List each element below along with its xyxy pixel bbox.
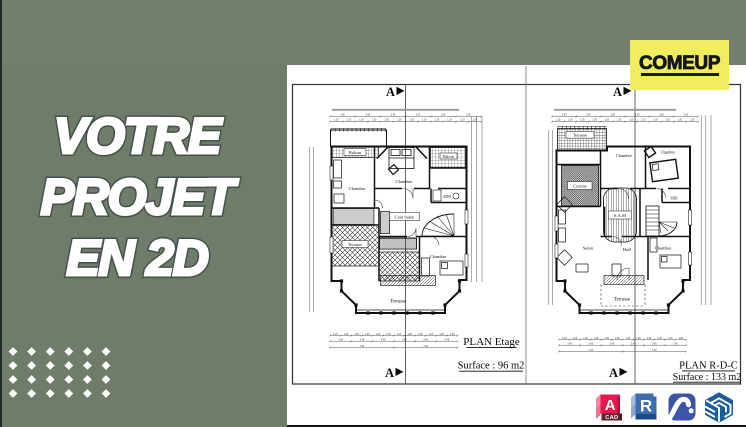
svg-text:3.45: 3.45	[567, 343, 572, 345]
svg-text:A: A	[385, 366, 394, 380]
svg-text:Balcon: Balcon	[349, 150, 362, 155]
svg-text:1.20: 1.20	[384, 120, 389, 122]
svg-text:Surface : 133 m2: Surface : 133 m2	[673, 372, 742, 383]
svg-text:1.20: 1.20	[604, 338, 609, 340]
svg-text:R: R	[640, 397, 652, 416]
svg-text:3.45: 3.45	[652, 343, 657, 345]
svg-text:1.20: 1.20	[410, 120, 415, 122]
svg-text:1.20: 1.20	[347, 120, 352, 122]
svg-text:Chambre: Chambre	[616, 153, 632, 158]
svg-text:1.20: 1.20	[556, 120, 561, 122]
svg-text:SDB: SDB	[443, 194, 451, 199]
svg-text:SDB: SDB	[671, 197, 679, 201]
svg-text:1.20: 1.20	[653, 120, 658, 122]
svg-text:7.30: 7.30	[360, 346, 365, 348]
svg-text:1.20: 1.20	[422, 120, 427, 122]
svg-text:3.45: 3.45	[338, 339, 343, 341]
svg-text:1.20: 1.20	[573, 338, 578, 340]
svg-text:Chambre: Chambre	[661, 151, 676, 155]
svg-text:A: A	[613, 85, 622, 99]
svg-text:Surface : 96 m2: Surface : 96 m2	[458, 361, 525, 372]
svg-text:1.20: 1.20	[447, 120, 452, 122]
svg-text:S.A.M: S.A.M	[614, 213, 626, 218]
svg-text:3.45: 3.45	[381, 339, 386, 341]
svg-text:Balcon: Balcon	[443, 155, 454, 159]
svg-text:3.45: 3.45	[423, 339, 428, 341]
svg-text:1.20: 1.20	[439, 334, 444, 336]
svg-text:1.20: 1.20	[472, 120, 477, 122]
svg-text:1.20: 1.20	[626, 338, 631, 340]
svg-text:1.20: 1.20	[359, 120, 364, 122]
svg-text:1.20: 1.20	[641, 120, 646, 122]
svg-text:Coin Salon: Coin Salon	[395, 215, 415, 220]
svg-text:1.20: 1.20	[354, 334, 359, 336]
svg-text:3.40: 3.40	[416, 114, 421, 116]
svg-text:Terrasse: Terrasse	[614, 298, 630, 303]
svg-text:1.20: 1.20	[583, 338, 588, 340]
svg-text:PLAN R-D-C: PLAN R-D-C	[679, 361, 738, 372]
svg-text:1.20: 1.20	[665, 120, 670, 122]
svg-text:Terrasse: Terrasse	[348, 242, 362, 247]
svg-text:1.20: 1.20	[647, 338, 652, 340]
svg-text:1.20: 1.20	[636, 338, 641, 340]
svg-text:1.20: 1.20	[562, 338, 567, 340]
svg-text:A: A	[609, 366, 618, 380]
svg-text:1.20: 1.20	[397, 334, 402, 336]
svg-text:1.20: 1.20	[435, 120, 440, 122]
svg-text:1.20: 1.20	[690, 120, 695, 122]
svg-text:3.40: 3.40	[586, 114, 591, 116]
svg-text:Hall: Hall	[623, 247, 632, 252]
svg-text:1.20: 1.20	[397, 120, 402, 122]
svg-text:3.40: 3.40	[611, 114, 616, 116]
svg-text:1.20: 1.20	[592, 120, 597, 122]
svg-text:1.20: 1.20	[334, 120, 339, 122]
svg-text:1.20: 1.20	[450, 334, 455, 336]
svg-text:1.20: 1.20	[333, 334, 338, 336]
svg-text:1.20: 1.20	[668, 338, 673, 340]
svg-text:3.40: 3.40	[562, 114, 567, 116]
svg-text:A: A	[386, 85, 395, 99]
svg-text:7.30: 7.30	[589, 350, 594, 352]
svg-text:1.20: 1.20	[386, 334, 391, 336]
svg-text:A: A	[605, 397, 616, 414]
svg-text:3.40: 3.40	[340, 114, 345, 116]
svg-text:1.20: 1.20	[657, 338, 662, 340]
svg-text:1.20: 1.20	[460, 120, 465, 122]
svg-text:1.20: 1.20	[605, 120, 610, 122]
svg-text:1.20: 1.20	[629, 120, 634, 122]
svg-text:7.30: 7.30	[652, 350, 657, 352]
svg-text:1.20: 1.20	[617, 120, 622, 122]
svg-text:1.20: 1.20	[615, 338, 620, 340]
svg-text:1.20: 1.20	[678, 338, 683, 340]
svg-text:3.40: 3.40	[466, 114, 471, 116]
svg-text:3.40: 3.40	[441, 114, 446, 116]
svg-text:3.40: 3.40	[391, 114, 396, 116]
svg-text:1.20: 1.20	[407, 334, 412, 336]
svg-text:3.45: 3.45	[360, 339, 365, 341]
svg-text:3.40: 3.40	[659, 114, 664, 116]
svg-text:Terrasse: Terrasse	[573, 133, 587, 138]
svg-text:7.30: 7.30	[423, 346, 428, 348]
svg-text:1.20: 1.20	[594, 338, 599, 340]
svg-text:3.45: 3.45	[589, 343, 594, 345]
svg-text:PLAN Etage: PLAN Etage	[463, 336, 520, 348]
svg-text:Chambre: Chambre	[430, 254, 447, 259]
svg-text:1.20: 1.20	[429, 334, 434, 336]
svg-text:1.20: 1.20	[344, 334, 349, 336]
svg-text:1.20: 1.20	[568, 120, 573, 122]
svg-text:1.20: 1.20	[376, 334, 381, 336]
svg-text:CAD: CAD	[605, 415, 618, 421]
svg-text:Chambre: Chambre	[396, 179, 413, 184]
svg-text:1.20: 1.20	[418, 334, 423, 336]
svg-text:3.45: 3.45	[673, 343, 678, 345]
svg-text:1.20: 1.20	[580, 120, 585, 122]
svg-text:1.20: 1.20	[678, 120, 683, 122]
svg-text:Terrasse: Terrasse	[390, 300, 406, 305]
svg-text:3.45: 3.45	[445, 339, 450, 341]
svg-text:Chambre: Chambre	[349, 186, 366, 191]
svg-text:1.20: 1.20	[372, 120, 377, 122]
svg-text:1.20: 1.20	[365, 334, 370, 336]
svg-text:3.45: 3.45	[610, 343, 615, 345]
svg-text:Salon: Salon	[583, 246, 594, 251]
svg-text:3.40: 3.40	[684, 114, 689, 116]
svg-text:3.40: 3.40	[635, 114, 640, 116]
svg-text:3.45: 3.45	[402, 339, 407, 341]
svg-text:Cuisine: Cuisine	[573, 184, 587, 189]
svg-text:3.40: 3.40	[366, 114, 371, 116]
svg-text:3.45: 3.45	[631, 343, 636, 345]
